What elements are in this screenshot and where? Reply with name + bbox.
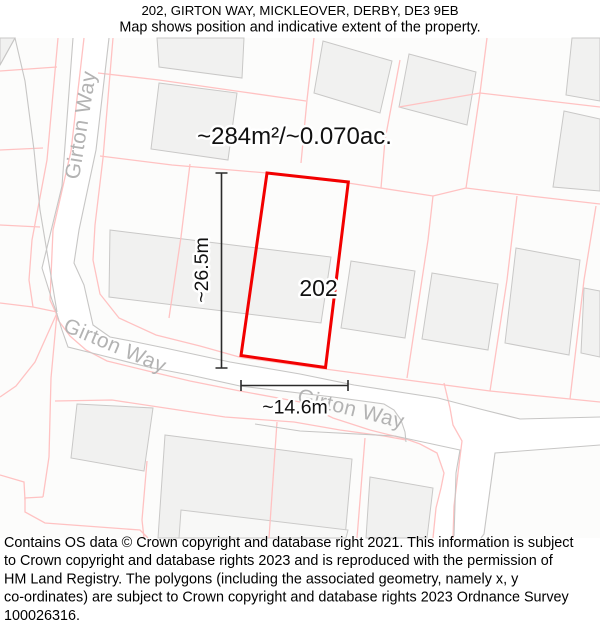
svg-text:to Crown copyright and databas: to Crown copyright and database rights 2… <box>4 553 554 569</box>
svg-text:Map shows position and indicat: Map shows position and indicative extent… <box>119 20 480 36</box>
svg-text:Contains OS data © Crown copyr: Contains OS data © Crown copyright and d… <box>4 535 573 551</box>
svg-text:202, GIRTON WAY, MICKLEOVER, D: 202, GIRTON WAY, MICKLEOVER, DERBY, DE3 … <box>141 3 458 18</box>
svg-text:100026316.: 100026316. <box>4 608 80 624</box>
svg-text:~284m²/~0.070ac.: ~284m²/~0.070ac. <box>197 123 392 150</box>
svg-text:HM Land Registry. The polygons: HM Land Registry. The polygons (includin… <box>4 571 519 587</box>
svg-text:~14.6m: ~14.6m <box>262 397 328 419</box>
svg-text:~26.5m: ~26.5m <box>191 237 213 303</box>
svg-text:co-ordinates) are subject to C: co-ordinates) are subject to Crown copyr… <box>4 590 570 606</box>
svg-text:202: 202 <box>299 275 337 301</box>
